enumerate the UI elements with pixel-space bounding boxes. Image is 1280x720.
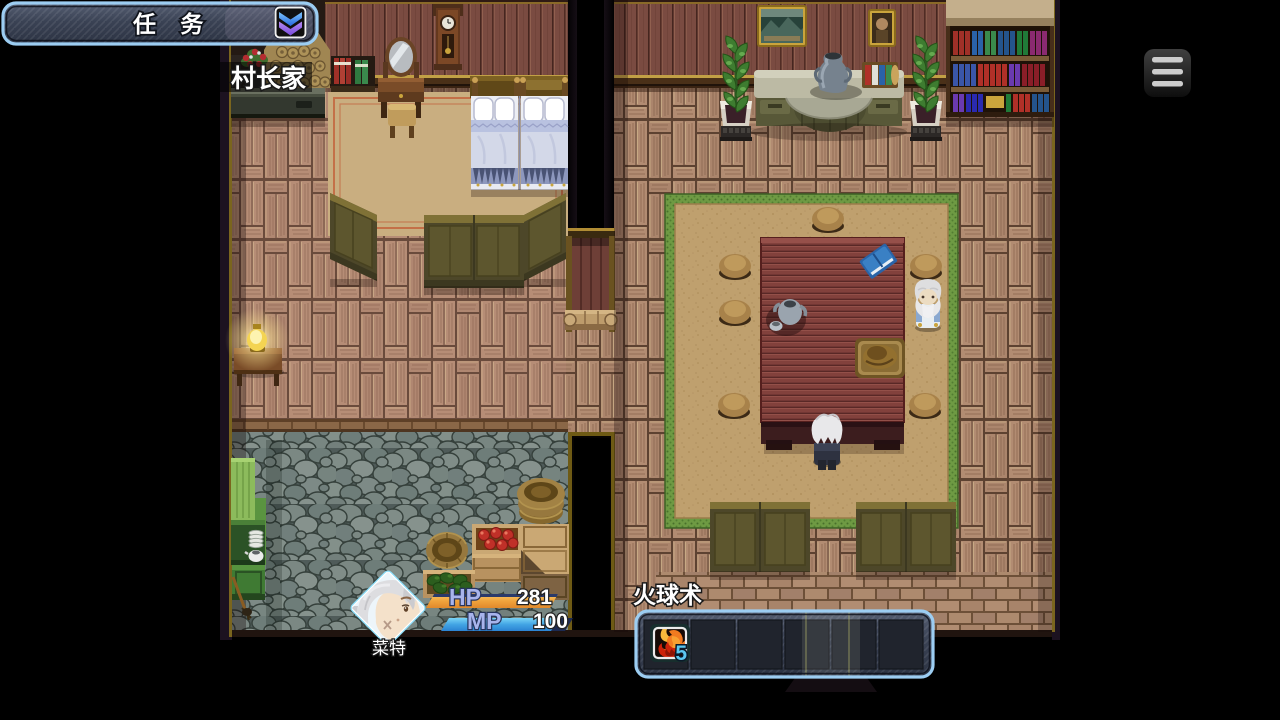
- svg-text:火球术: 火球术: [633, 582, 702, 608]
- svg-text:5: 5: [675, 642, 687, 665]
- svg-text:281: 281: [517, 586, 552, 609]
- svg-text:任 务: 任 务: [132, 11, 212, 37]
- svg-text:MP: MP: [467, 608, 502, 634]
- svg-text:村长家: 村长家: [231, 64, 306, 93]
- svg-text:100: 100: [533, 610, 568, 633]
- svg-text:HP: HP: [449, 584, 481, 610]
- svg-text:菜特: 菜特: [372, 639, 406, 658]
